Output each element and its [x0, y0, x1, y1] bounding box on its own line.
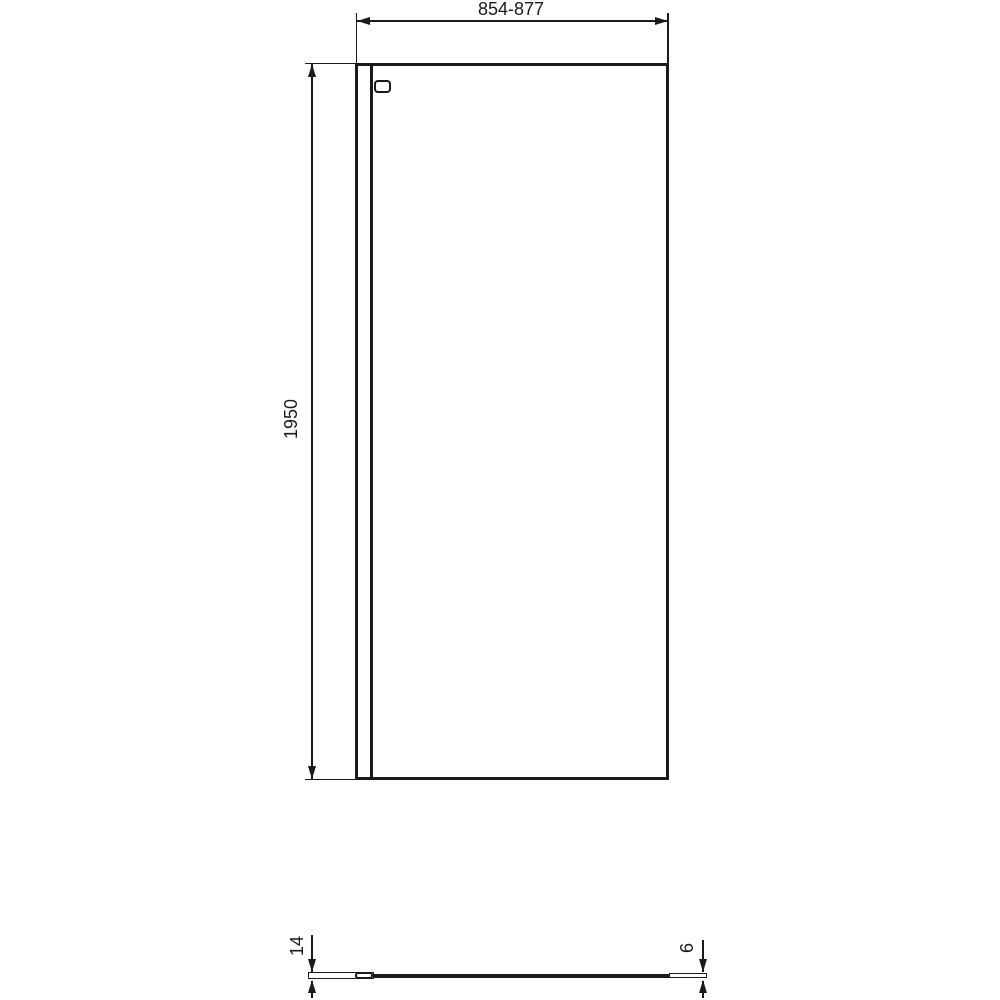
wall-profile-right-edge: [370, 63, 373, 780]
glass-panel-section: [373, 974, 669, 978]
width-arrow-right-icon: [655, 17, 668, 25]
drawing-canvas: 854-877 1950 14: [0, 0, 1000, 1000]
depth-dimension-label: 14: [288, 936, 306, 956]
thickness-arrow-up-icon: [699, 980, 707, 993]
mounting-bracket: [374, 80, 391, 93]
thickness-arrow-down-icon: [699, 959, 707, 972]
height-arrow-down-icon: [308, 766, 316, 779]
depth-arrow-down-icon: [308, 959, 316, 972]
panel-right-edge: [666, 63, 669, 780]
glass-edge-strip: [669, 973, 707, 978]
depth-arrow-up-icon: [308, 980, 316, 993]
width-arrow-left-icon: [357, 17, 370, 25]
panel-bottom-edge: [355, 777, 669, 780]
height-dimension-label: 1950: [282, 399, 300, 439]
mounting-bracket-section: [355, 972, 373, 979]
width-dimension-label: 854-877: [478, 0, 544, 18]
thickness-dimension-label: 6: [678, 943, 696, 953]
height-arrow-up-icon: [308, 64, 316, 77]
panel-top-edge: [355, 63, 669, 66]
height-dimension-line: [311, 64, 312, 779]
wall-profile-left-edge: [355, 63, 358, 780]
width-dimension-line: [357, 20, 668, 21]
